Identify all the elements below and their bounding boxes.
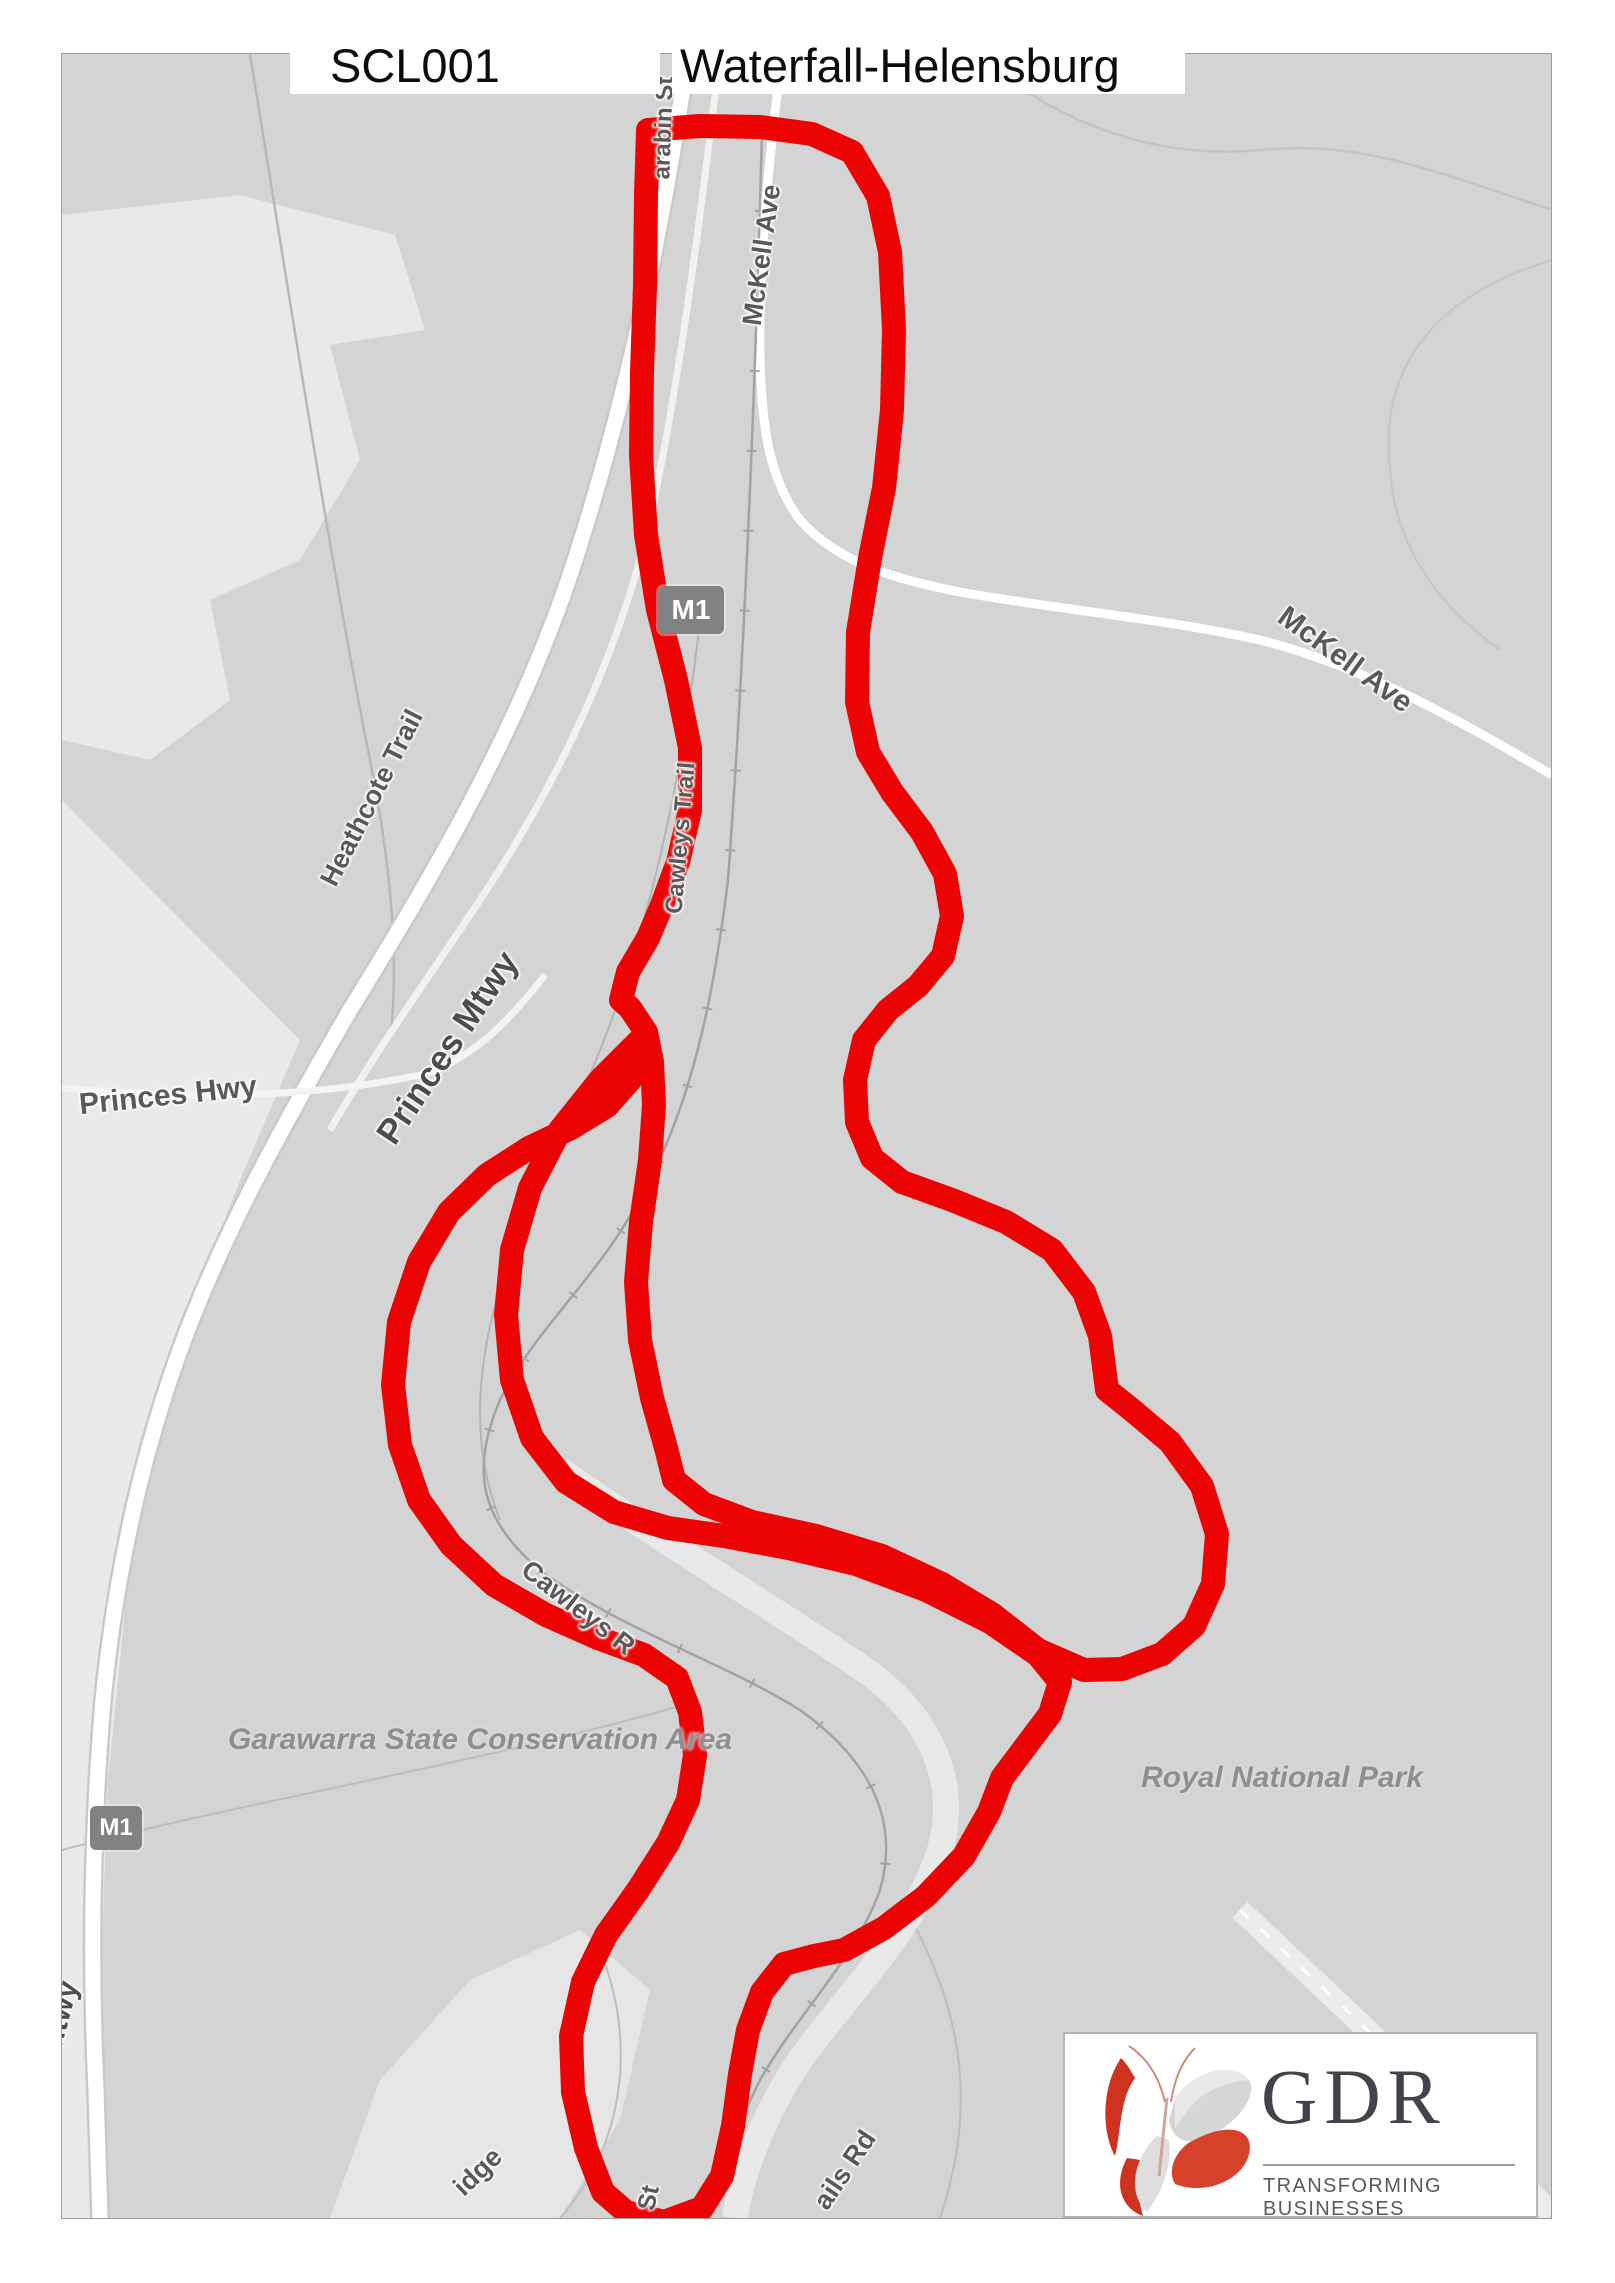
m1-shield-label: M1	[99, 1814, 132, 1842]
m1-route-shield-south: M1	[90, 1806, 142, 1850]
road-label-mckell-ave-north: McKell Ave	[737, 183, 787, 328]
trail-label-cawleys: Cawleys Trail	[660, 761, 701, 915]
road-label-princes-mtwy: Princes Mtwy	[369, 944, 527, 1152]
road-label-mckell-ave-east: McKell Ave	[1271, 600, 1419, 720]
m1-shield-label: M1	[672, 594, 711, 626]
title-route-name-box: Waterfall-Helensburg	[672, 36, 1185, 94]
gdr-logo: GDR TRANSFORMING BUSINESSES	[1063, 2032, 1538, 2218]
logo-wordmark: GDR	[1261, 2052, 1447, 2142]
trail-label-heathcote: Heathcote Trail	[314, 705, 429, 892]
m1-route-shield: M1	[658, 586, 724, 634]
title-route-id: SCL001	[330, 38, 500, 93]
logo-divider	[1263, 2164, 1515, 2166]
map-page: arabin St McKell Ave McKell Ave Heathcot…	[0, 0, 1615, 2283]
logo-tagline: TRANSFORMING BUSINESSES	[1263, 2175, 1536, 2221]
road-label-mtwy-partial: Mtwy	[61, 1977, 86, 2058]
road-label-ridge-partial: idge	[447, 2142, 508, 2203]
butterfly-icon	[1083, 2036, 1273, 2218]
map-label-layer: arabin St McKell Ave McKell Ave Heathcot…	[61, 53, 1552, 2219]
road-label-st-partial: St	[632, 2183, 666, 2213]
title-route-name: Waterfall-Helensburg	[680, 38, 1120, 93]
title-route-id-box: SCL001	[290, 36, 660, 94]
park-label-royal-national-park: Royal National Park	[1141, 1761, 1423, 1795]
road-label-falls-rd-partial: ails Rd	[807, 2125, 882, 2216]
park-label-garawarra: Garawarra State Conservation Area	[228, 1723, 732, 1757]
road-label-cawleys-rd-partial: Cawleys R	[515, 1554, 641, 1662]
road-label-princes-hwy: Princes Hwy	[78, 1070, 259, 1122]
